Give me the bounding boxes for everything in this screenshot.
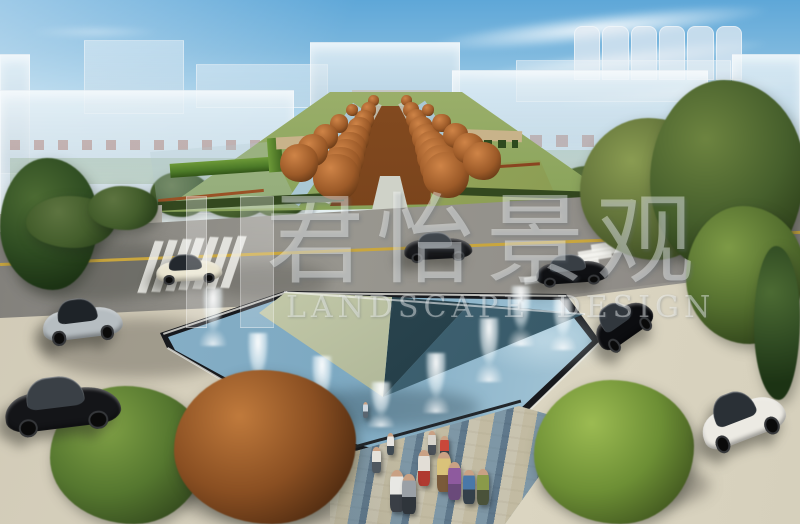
pedestrian (402, 474, 416, 514)
axis-autumn-tree (463, 142, 501, 180)
watermark-logo-bar (186, 196, 207, 328)
car-wheel (163, 275, 175, 285)
watermark-latin-text: LANDSCAPE DESIGN (286, 290, 715, 325)
tree-left-row (88, 186, 158, 230)
pedestrian (418, 450, 430, 486)
pedestrian (363, 402, 368, 418)
autumn-tree-foreground (174, 370, 356, 524)
car (40, 293, 125, 344)
pedestrian (372, 447, 381, 473)
watermark-cjk-text: 君怡景观 (266, 188, 706, 296)
fountain-jet (473, 318, 505, 382)
pedestrian (428, 431, 436, 455)
cloud-streak (30, 26, 160, 38)
axis-autumn-tree (346, 104, 358, 116)
bush-bottom-right (534, 380, 694, 524)
car-wheel (51, 330, 66, 346)
fountain-jet (365, 382, 397, 427)
fountain-jet (420, 353, 452, 413)
pedestrian (477, 469, 489, 505)
pedestrian (448, 462, 461, 500)
tree-right-edge (754, 246, 800, 400)
pedestrian (387, 433, 394, 455)
axis-autumn-tree (422, 104, 434, 116)
axis-autumn-tree (280, 144, 318, 182)
rendering-canvas: 君怡景观 LANDSCAPE DESIGN (0, 0, 800, 524)
pedestrian (463, 470, 475, 504)
